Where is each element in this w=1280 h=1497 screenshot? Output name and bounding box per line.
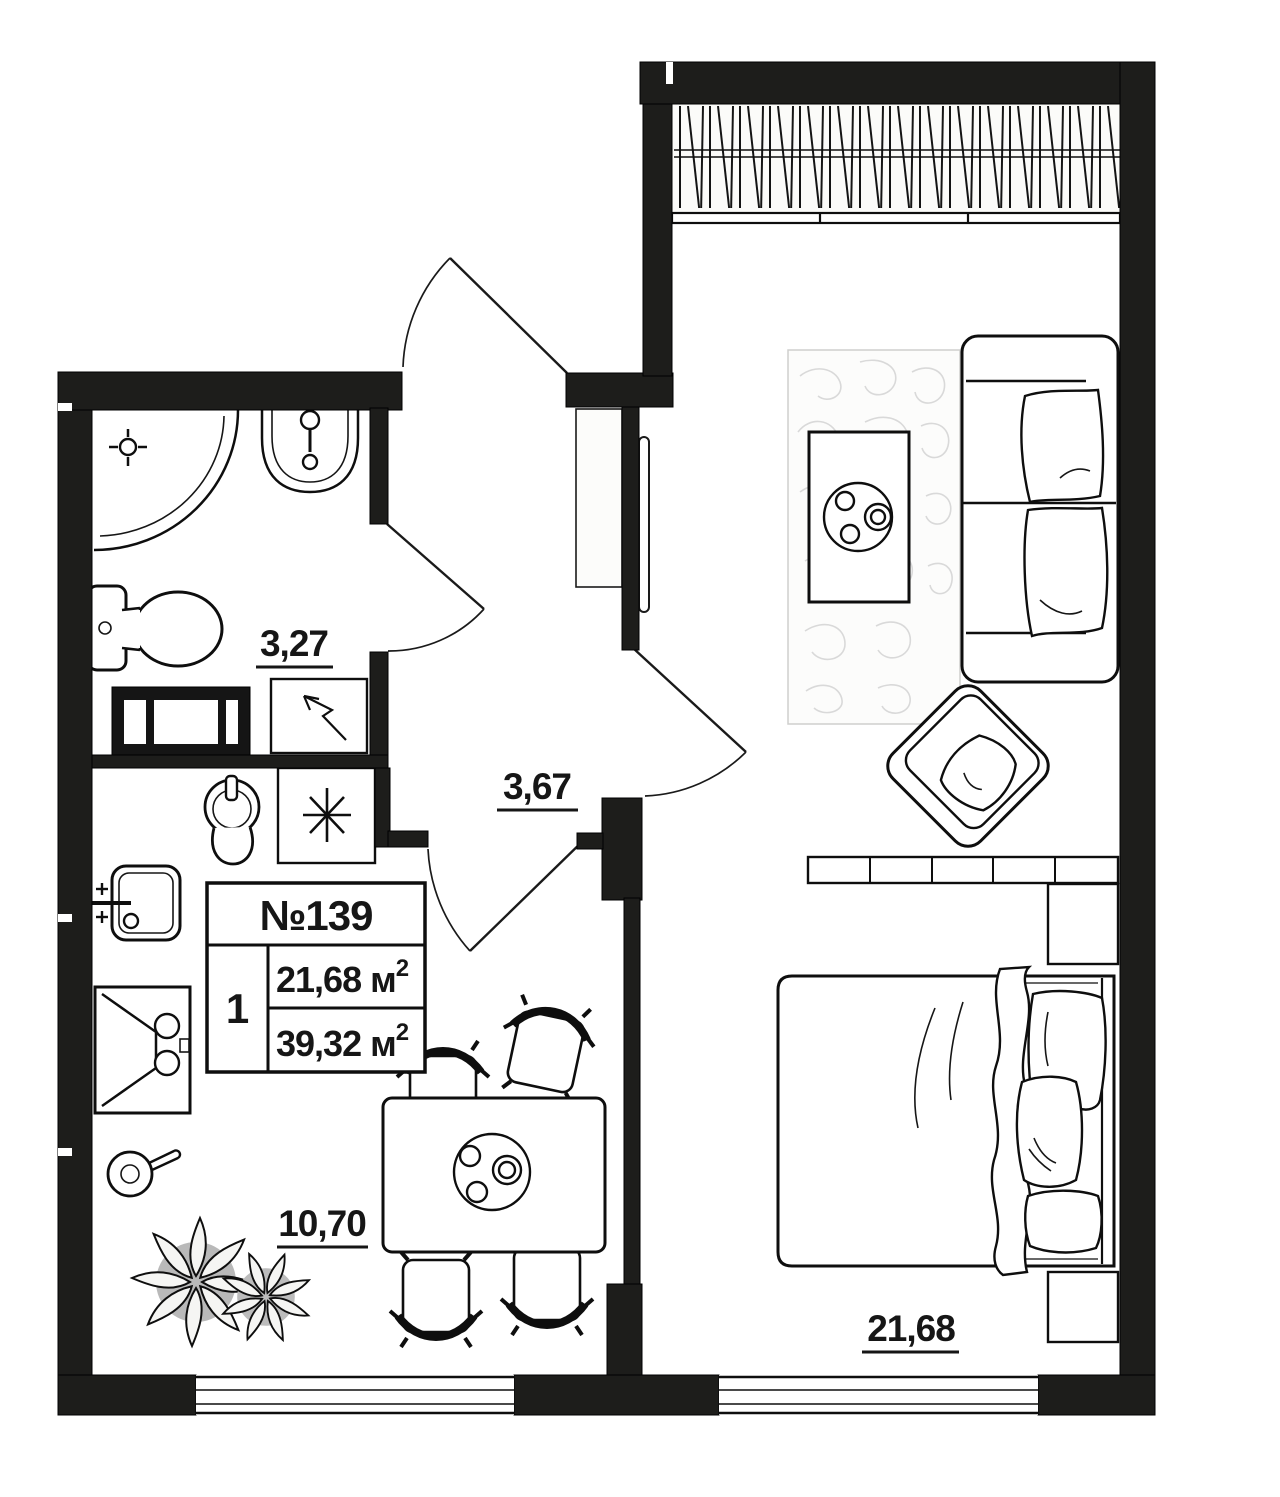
hallway-closet bbox=[576, 409, 622, 587]
sofa bbox=[962, 336, 1118, 682]
kettle bbox=[205, 776, 259, 864]
wall-bath-right-lower bbox=[370, 652, 388, 768]
chair bbox=[390, 1252, 482, 1347]
wall-top bbox=[640, 62, 1155, 104]
wall-bottom-mid bbox=[514, 1375, 719, 1415]
label-bedroom-area: 21,68 bbox=[867, 1308, 955, 1349]
sofa-pillow bbox=[1025, 508, 1108, 636]
chair bbox=[492, 992, 602, 1104]
doors bbox=[387, 258, 746, 951]
window-bedroom bbox=[719, 1375, 1038, 1415]
entry-door bbox=[403, 258, 567, 373]
shower bbox=[94, 410, 238, 550]
toilet-tank bbox=[88, 586, 126, 670]
wall-hall-cap bbox=[566, 373, 673, 407]
wall-bath-right-upper bbox=[370, 408, 388, 524]
window-kitchen bbox=[196, 1375, 514, 1415]
bathroom-sink bbox=[262, 400, 358, 492]
wall-pier bbox=[607, 1284, 642, 1379]
nightstand bbox=[1048, 884, 1118, 964]
sofa-pillow bbox=[1021, 390, 1103, 502]
wall-bathroom-top bbox=[58, 372, 402, 410]
wardrobe bbox=[672, 104, 1120, 223]
rooms-count: 1 bbox=[226, 985, 249, 1032]
faucet-icon bbox=[301, 411, 319, 429]
nightstand bbox=[1048, 1272, 1118, 1342]
tv-console bbox=[808, 857, 1118, 883]
kitchen-sink bbox=[92, 866, 180, 940]
shower-head-icon bbox=[120, 439, 136, 455]
wall-hall-strip-upper bbox=[622, 407, 639, 650]
electric-panel bbox=[271, 679, 367, 753]
total-area-value: 39,32 м2 bbox=[276, 1019, 409, 1064]
floor-plan-page: 3,27 3,67 10,70 21,68 №139 1 21,68 м2 39… bbox=[0, 0, 1280, 1497]
floor-plan: 3,27 3,67 10,70 21,68 №139 1 21,68 м2 39… bbox=[0, 0, 1280, 1497]
wall-bottom-left bbox=[58, 1375, 196, 1415]
wall-door-block bbox=[602, 798, 642, 900]
wardrobe-sliding-doors bbox=[672, 213, 1120, 223]
wall-left bbox=[58, 372, 92, 1415]
burner-icon bbox=[155, 1051, 179, 1075]
kitchen-door bbox=[428, 836, 588, 951]
wall-living-left bbox=[643, 104, 672, 376]
toilet-bowl bbox=[134, 592, 222, 666]
label-bathroom-area: 3,27 bbox=[260, 623, 328, 664]
washing-machine bbox=[112, 687, 250, 758]
open-door-leaf bbox=[639, 437, 649, 612]
frying-pan bbox=[108, 1150, 180, 1196]
burner-icon bbox=[155, 1014, 179, 1038]
wall-bottom-right bbox=[1038, 1375, 1155, 1415]
living-area-value: 21,68 м2 bbox=[276, 955, 409, 1000]
wall-bath-bottom bbox=[92, 755, 388, 768]
living-room-door bbox=[633, 648, 746, 796]
label-kitchen-area: 10,70 bbox=[278, 1203, 366, 1244]
coffee-table bbox=[809, 432, 909, 602]
stove bbox=[95, 987, 190, 1113]
stove-symbol-box bbox=[278, 768, 375, 863]
bed-pillow bbox=[1025, 1191, 1101, 1253]
apartment-number: №139 bbox=[260, 892, 373, 939]
toilet bbox=[88, 586, 222, 670]
wall-hall-strip-lower bbox=[624, 898, 640, 1290]
label-hallway-area: 3,67 bbox=[503, 766, 571, 807]
wall-door-tab bbox=[577, 833, 603, 849]
wall-right bbox=[1120, 62, 1155, 1415]
bathroom-door bbox=[387, 524, 484, 651]
bed bbox=[778, 967, 1114, 1275]
info-table: №139 1 21,68 м2 39,32 м2 bbox=[207, 883, 425, 1072]
chair bbox=[501, 1240, 593, 1335]
wall-kitchen-horiz bbox=[388, 831, 428, 847]
